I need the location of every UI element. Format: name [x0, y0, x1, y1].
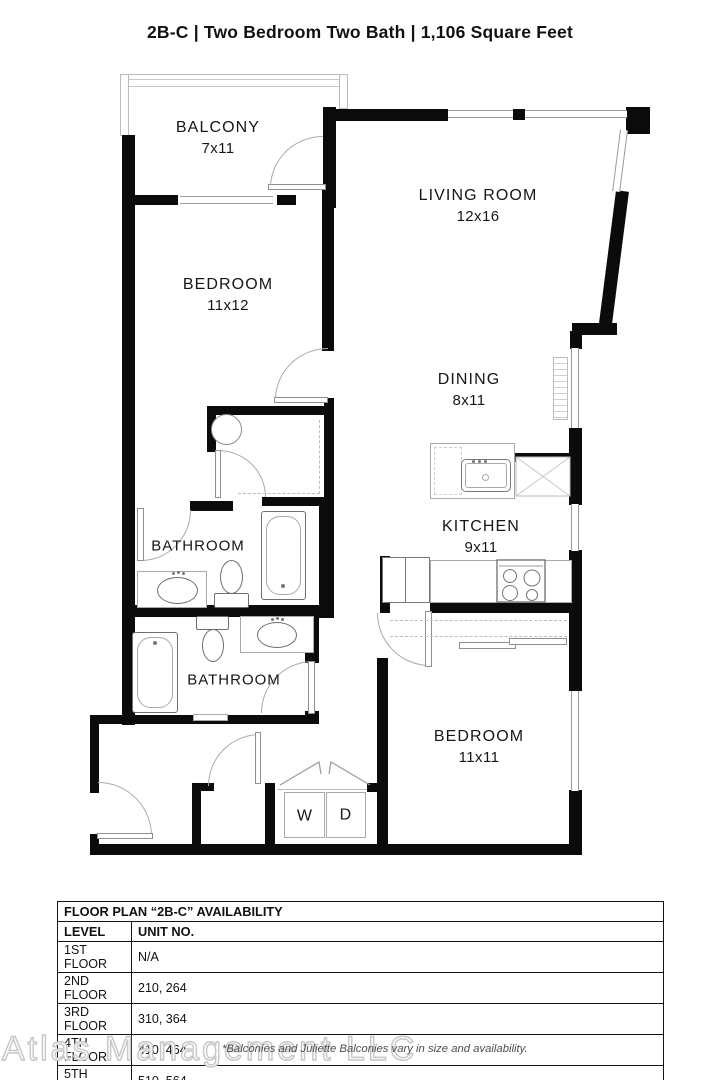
door-leaf: [137, 508, 144, 561]
tub-drain: [153, 641, 157, 645]
faucet: [281, 618, 284, 621]
pass-through-cabinet: [515, 456, 571, 497]
window: [180, 196, 273, 204]
door-leaf: [308, 661, 315, 714]
window: [571, 504, 579, 551]
door-arc: [208, 734, 260, 786]
window-slanted: [612, 129, 628, 192]
faucet: [484, 460, 487, 463]
refrigerator-divider: [405, 558, 406, 602]
wall: [277, 195, 296, 205]
toilet: [196, 616, 229, 630]
availability-note: *Balconies and Juliette Balconies vary i…: [222, 1043, 528, 1055]
unit-cell: 210, 264: [132, 973, 664, 1004]
closet-shelf-dashes: [238, 420, 320, 494]
sink: [157, 577, 198, 604]
stove: [496, 559, 546, 603]
sink: [257, 622, 297, 648]
room-label-bathroom1: BATHROOM: [151, 536, 245, 557]
page-title: 2B-C | Two Bedroom Two Bath | 1,106 Squa…: [0, 22, 720, 43]
table-title-row: FLOOR PLAN “2B-C” AVAILABILITY: [58, 902, 664, 922]
wall: [626, 107, 650, 134]
col-header-level: LEVEL: [58, 922, 132, 942]
table-header-row: LEVEL UNIT NO.: [58, 922, 664, 942]
room-label-bedroom2: BEDROOM11x11: [434, 726, 524, 768]
toilet-bowl: [220, 560, 243, 594]
window: [571, 348, 579, 428]
room-label-kitchen: KITCHEN9x11: [442, 516, 520, 558]
window: [448, 110, 513, 118]
wall: [570, 331, 582, 349]
washer-label: W: [297, 806, 313, 827]
dryer-label: D: [340, 805, 353, 826]
level-cell: 2ND FLOOR: [58, 973, 132, 1004]
sliding-closet-door: [509, 638, 567, 645]
balcony-rail-left: [120, 74, 129, 136]
faucet: [177, 571, 180, 574]
refrigerator: [382, 557, 430, 603]
room-label-living: LIVING ROOM12x16: [419, 185, 538, 227]
wall: [192, 783, 201, 847]
wall: [325, 109, 448, 121]
table-row: 2ND FLOOR 210, 264: [58, 973, 664, 1004]
wall-heater: [553, 357, 568, 420]
availability-title: FLOOR PLAN “2B-C” AVAILABILITY: [58, 902, 664, 922]
faucet: [478, 460, 481, 463]
wall: [190, 501, 233, 511]
unit-cell: N/A: [132, 942, 664, 973]
room-label-dining: DINING8x11: [438, 369, 501, 411]
bathtub-basin: [137, 637, 173, 708]
door-arc: [270, 136, 323, 188]
wall: [90, 844, 582, 855]
window: [571, 691, 579, 791]
col-header-unit: UNIT NO.: [132, 922, 664, 942]
door-leaf: [274, 397, 328, 403]
faucet: [472, 460, 475, 463]
door-arc: [275, 348, 328, 400]
closet-rod-dashes: [390, 620, 567, 637]
door-leaf: [255, 732, 261, 784]
wall: [377, 658, 388, 848]
table-row: 1ST FLOOR N/A: [58, 942, 664, 973]
room-label-balcony: BALCONY7x11: [176, 117, 260, 159]
tub-drain: [281, 584, 285, 588]
door-leaf: [215, 450, 221, 498]
balcony-rail-inner: [125, 79, 343, 87]
faucet: [276, 617, 279, 620]
room-label-bedroom1: BEDROOM11x12: [183, 274, 273, 316]
wall: [322, 188, 334, 351]
floor-plan-page: 2B-C | Two Bedroom Two Bath | 1,106 Squa…: [0, 0, 720, 1080]
balcony-rail-right: [339, 74, 348, 109]
wall: [513, 109, 525, 120]
toilet-bowl: [202, 629, 224, 662]
bifold-doors: [277, 757, 373, 787]
level-cell: 1ST FLOOR: [58, 942, 132, 973]
faucet: [182, 572, 185, 575]
island-dashes: [434, 447, 462, 495]
door-leaf: [268, 184, 326, 190]
entry-door-arc: [98, 782, 152, 836]
toilet: [214, 593, 249, 608]
wall-slanted: [598, 190, 629, 333]
room-label-bathroom2: BATHROOM: [187, 670, 281, 691]
wall: [122, 195, 178, 205]
wall: [319, 497, 334, 618]
faucet: [271, 618, 274, 621]
faucet: [172, 572, 175, 575]
wall: [324, 398, 334, 506]
wall: [265, 783, 275, 847]
entry-door-leaf: [97, 833, 153, 839]
sink-drain: [482, 474, 489, 481]
cased-opening: [193, 714, 228, 721]
sliding-closet-door: [459, 642, 516, 649]
wall: [569, 790, 582, 853]
window: [525, 110, 627, 118]
